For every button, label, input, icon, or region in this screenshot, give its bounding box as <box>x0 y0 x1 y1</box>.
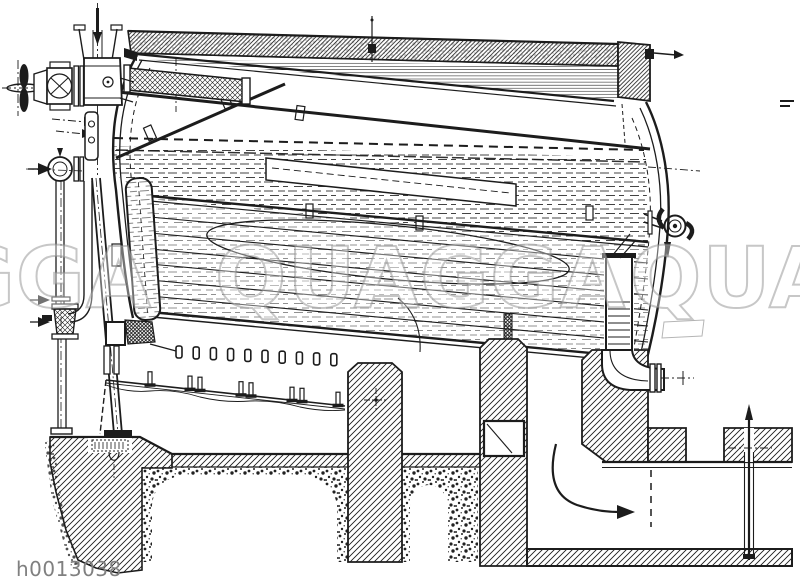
engraving-page: GGA QUAGGA QUA h0013038 <box>0 0 800 587</box>
watermark: GGA QUAGGA QUA <box>0 229 800 338</box>
watermark-text-center: QUAGGA <box>215 229 626 327</box>
bracket-plate <box>85 112 98 160</box>
uptake-pier <box>480 339 527 566</box>
bridge-wall-pier <box>348 363 402 562</box>
left-arch <box>142 467 350 562</box>
boiler-engraving: GGA QUAGGA QUA <box>0 0 800 587</box>
watermark-text-left: GGA <box>0 229 152 327</box>
floor-band <box>172 454 480 467</box>
right-arch <box>402 467 478 562</box>
cleanout-door <box>484 421 524 456</box>
watermark-text-right: QUA <box>630 229 800 327</box>
image-id-label: h0013038 <box>16 558 122 580</box>
